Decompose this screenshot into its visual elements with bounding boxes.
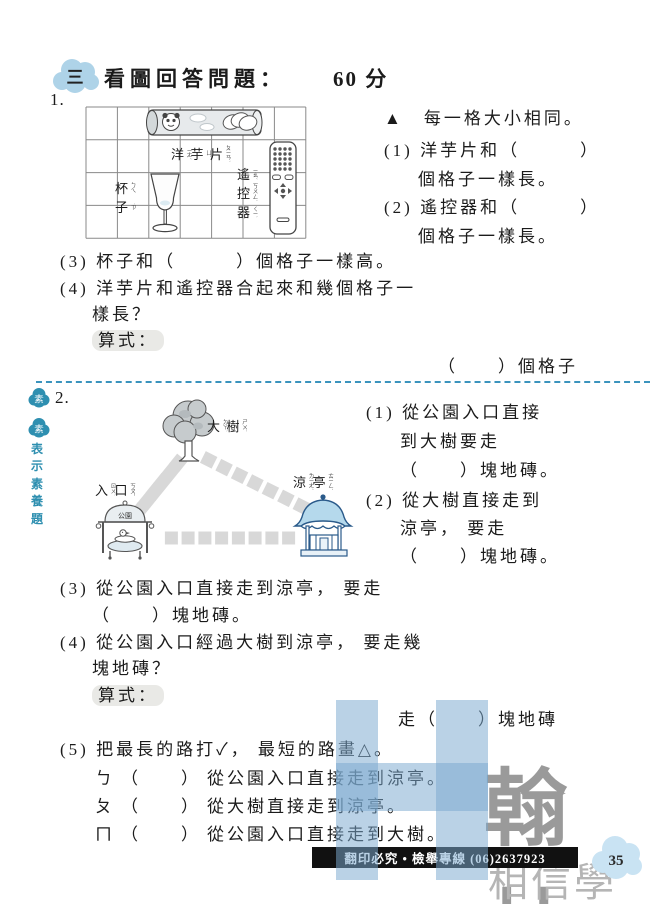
q2-answer-blank: 走（ ）塊地磚 [398,705,558,730]
q2-sub1-line3: （ ）塊地磚。 [400,456,560,481]
entrance-label: 入ㄖㄨˋ口ㄎㄡˇ [95,480,134,499]
cup-illustration [151,174,179,232]
park-figure: 公園 [85,396,357,566]
option-blank: （ ） [121,764,201,789]
q1-formula-label: 算式： [92,326,164,351]
q2-sub3-line2: （ ）塊地磚。 [92,601,252,626]
q2-sub2-line1: (2) 從大樹直接走到 [366,486,542,511]
remote-control-illustration [270,142,296,234]
legend-tag-cloud: 素 [27,418,51,438]
q2-sub3-line1: (3) 從公園入口直接走到涼亭， 要走 [60,574,383,599]
q2-sub1-line1: (1) 從公園入口直接 [366,398,542,423]
q2-sub4-line2: 塊地磚？ [92,654,172,679]
worksheet-page: 翰林 相信學習 三 看圖回答問題： 60 分 1. [0,0,657,904]
q2-option-m: ㄇ （ ） 從公園入口直接走到大樹。 [95,820,447,845]
q2-option-b: ㄅ （ ） 從公園入口直接走到涼亭。 [95,764,447,789]
remote-label: 遙ㄧㄠˊ控ㄎㄨㄥˋ器ㄑㄧˋ [237,164,257,221]
option-text: 從公園入口直接走到涼亭。 [207,764,447,789]
q2-sub1-line2: 到大樹要走 [400,427,500,452]
grid-figure: 洋ㄧㄤˊ芋ㄩˋ片ㄆㄧㄢˋ 杯ㄅㄟ子˙ㄗ 遙ㄧㄠˊ控ㄎㄨㄥˋ器ㄑㄧˋ [85,106,307,240]
q1-sub2-line1: (2) 遙控器和（ ） [384,193,600,218]
points-label: 60 分 [333,63,388,93]
q1-sub3: (3) 杯子和（ ）個格子一樣高。 [60,247,396,272]
potato-chips-can-illustration [147,110,263,135]
q1-sub4-line2: 樣長？ [92,300,152,325]
q1-sub1-line2: 個格子一樣長。 [418,165,558,190]
option-key: ㄅ [95,764,115,789]
option-blank: （ ） [121,820,201,845]
option-blank: （ ） [121,792,201,817]
page-number-cloud: 35 [588,835,646,881]
q2-option-p: ㄆ （ ） 從大樹直接走到涼亭。 [95,792,407,817]
q1-sub1-line1: (1) 洋芋片和（ ） [384,136,600,161]
question1-number: 1. [50,90,65,110]
q2-sub2-line2: 涼亭， 要走 [400,514,507,539]
section-badge-cloud: 三 [50,58,100,94]
question2-number: 2. [55,388,70,408]
option-text: 從大樹直接走到涼亭。 [207,792,407,817]
page-title: 看圖回答問題： [104,63,286,93]
copyright-bar: 翻印必究 • 檢舉專線 (06)2637923 [312,847,578,868]
option-key: ㄆ [95,792,115,817]
chips-label: 洋ㄧㄤˊ芋ㄩˋ片ㄆㄧㄢˋ [171,144,230,163]
q2-sub5: (5) 把最長的路打✓， 最短的路畫△。 [60,735,394,760]
competency-tag-cloud: 素 [27,388,51,408]
tree-label: 大ㄉㄚˋ樹ㄕㄨˋ [207,416,246,435]
section-divider [36,381,650,383]
note-grid-equal: ▲ 每一格大小相同。 [384,104,584,129]
legend-text-vertical: 表示素養題 [31,441,46,528]
page-number: 35 [609,853,624,869]
option-key: ㄇ [95,820,115,845]
q2-sub4-line1: (4) 從公園入口經過大樹到涼亭， 要走幾 [60,628,423,653]
q1-answer-blank: （ ）個格子 [438,352,578,377]
q2-formula-label: 算式： [92,681,164,706]
q2-sub2-line3: （ ）塊地磚。 [400,542,560,567]
q1-sub4-line1: (4) 洋芋片和遙控器合起來和幾個格子一 [60,274,416,299]
park-sign: 公園 [118,512,132,520]
cup-label: 杯ㄅㄟ子˙ㄗ [115,178,135,216]
svg-text:素: 素 [34,424,44,436]
svg-text:素: 素 [34,394,44,406]
q1-sub2-line2: 個格子一樣長。 [418,222,558,247]
pavilion-label: 涼ㄌㄧㄤˊ亭ㄊㄧㄥˊ [293,472,332,491]
section-number: 三 [67,68,84,87]
tiles-entrance-to-pavilion [165,532,295,545]
option-text: 從公園入口直接走到大樹。 [207,820,447,845]
